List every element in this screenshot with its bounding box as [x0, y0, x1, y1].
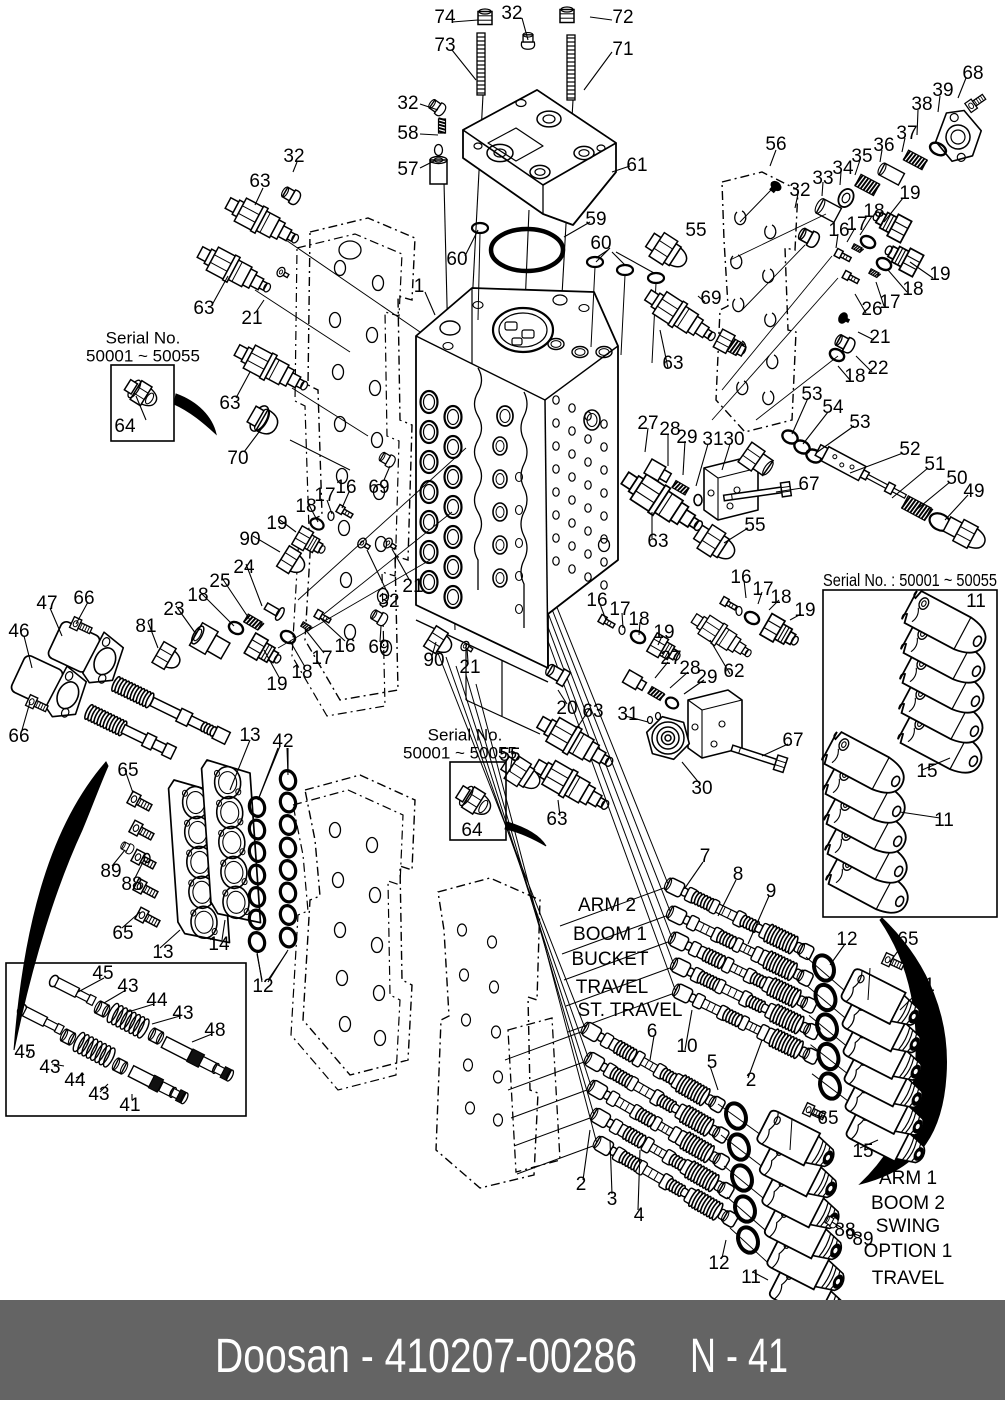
svg-text:1: 1: [414, 276, 425, 297]
svg-text:66: 66: [8, 726, 29, 747]
svg-text:32: 32: [397, 93, 418, 114]
svg-text:65: 65: [117, 760, 138, 781]
svg-text:39: 39: [932, 80, 953, 101]
svg-text:Doosan - 410207-00286: Doosan - 410207-00286: [215, 1330, 637, 1383]
svg-text:16: 16: [730, 567, 751, 588]
svg-text:43: 43: [117, 976, 138, 997]
svg-text:TRAVEL: TRAVEL: [872, 1268, 945, 1289]
svg-text:18: 18: [902, 279, 923, 300]
svg-text:72: 72: [612, 7, 633, 28]
svg-text:13: 13: [152, 942, 173, 963]
svg-text:55: 55: [685, 220, 706, 241]
svg-text:12: 12: [836, 929, 857, 950]
svg-text:8: 8: [733, 864, 744, 885]
svg-text:52: 52: [899, 439, 920, 460]
svg-text:61: 61: [626, 155, 647, 176]
svg-text:14: 14: [208, 934, 230, 955]
svg-text:13: 13: [239, 725, 260, 746]
svg-text:88: 88: [121, 874, 142, 895]
svg-text:56: 56: [765, 134, 786, 155]
svg-text:58: 58: [397, 123, 418, 144]
svg-text:7: 7: [700, 846, 711, 867]
svg-text:23: 23: [163, 599, 184, 620]
svg-text:18: 18: [844, 366, 865, 387]
svg-text:20: 20: [556, 698, 577, 719]
svg-text:17: 17: [879, 292, 900, 313]
svg-text:18: 18: [187, 585, 208, 606]
svg-text:43: 43: [172, 1003, 193, 1024]
svg-text:15: 15: [916, 761, 937, 782]
svg-text:22: 22: [867, 358, 888, 379]
svg-text:31: 31: [702, 429, 723, 450]
svg-text:21: 21: [402, 576, 423, 597]
svg-text:44: 44: [146, 990, 168, 1011]
svg-text:34: 34: [832, 158, 854, 179]
svg-text:41: 41: [119, 1095, 140, 1116]
svg-text:53: 53: [801, 384, 822, 405]
svg-text:SWING: SWING: [876, 1216, 940, 1237]
svg-text:2: 2: [576, 1174, 587, 1195]
svg-text:69: 69: [368, 637, 389, 658]
svg-text:64: 64: [114, 416, 136, 437]
svg-text:18: 18: [628, 609, 649, 630]
svg-text:24: 24: [233, 557, 255, 578]
svg-text:63: 63: [249, 171, 270, 192]
svg-text:65: 65: [817, 1108, 838, 1129]
svg-text:19: 19: [929, 264, 950, 285]
svg-text:Serial No.: Serial No.: [428, 725, 503, 744]
svg-text:45: 45: [14, 1042, 35, 1063]
svg-text:60: 60: [590, 233, 611, 254]
svg-text:90: 90: [423, 650, 444, 671]
svg-text:17: 17: [846, 214, 867, 235]
svg-text:35: 35: [851, 146, 872, 167]
svg-text:29: 29: [676, 427, 697, 448]
svg-text:48: 48: [204, 1020, 225, 1041]
svg-text:ARM 2: ARM 2: [578, 895, 636, 916]
svg-text:21: 21: [459, 657, 480, 678]
svg-text:BOOM 2: BOOM 2: [871, 1193, 945, 1214]
svg-text:32: 32: [378, 591, 399, 612]
svg-text:50001 ~ 50055: 50001 ~ 50055: [86, 346, 200, 365]
svg-text:54: 54: [822, 397, 844, 418]
svg-text:44: 44: [64, 1070, 86, 1091]
svg-text:62: 62: [723, 661, 744, 682]
svg-text:53: 53: [849, 412, 870, 433]
svg-text:50001 ~ 50055: 50001 ~ 50055: [403, 743, 517, 762]
svg-text:9: 9: [766, 881, 777, 902]
svg-text:21: 21: [869, 327, 890, 348]
svg-text:27: 27: [637, 413, 658, 434]
svg-text:19: 19: [899, 183, 920, 204]
svg-text:19: 19: [266, 513, 287, 534]
svg-text:BUCKET: BUCKET: [571, 949, 648, 970]
svg-text:ARM 1: ARM 1: [879, 1168, 937, 1189]
svg-text:30: 30: [723, 429, 744, 450]
svg-text:11: 11: [741, 1267, 761, 1288]
svg-text:66: 66: [73, 588, 94, 609]
svg-text:63: 63: [647, 531, 668, 552]
svg-text:19: 19: [266, 674, 287, 695]
svg-text:11: 11: [915, 975, 935, 996]
svg-text:81: 81: [135, 616, 156, 637]
svg-text:64: 64: [461, 820, 483, 841]
svg-text:4: 4: [634, 1205, 645, 1226]
svg-text:29: 29: [696, 667, 717, 688]
svg-text:12: 12: [708, 1253, 729, 1274]
svg-text:67: 67: [782, 730, 803, 751]
svg-text:67: 67: [798, 474, 819, 495]
svg-text:55: 55: [744, 515, 765, 536]
svg-text:5: 5: [707, 1052, 718, 1073]
svg-text:47: 47: [36, 593, 57, 614]
svg-text:42: 42: [272, 731, 293, 752]
svg-text:69: 69: [700, 288, 721, 309]
svg-text:OPTION 1: OPTION 1: [864, 1241, 953, 1262]
svg-text:37: 37: [896, 123, 917, 144]
svg-text:16: 16: [586, 590, 607, 611]
svg-text:11: 11: [934, 810, 954, 831]
svg-text:89: 89: [100, 861, 121, 882]
svg-text:57: 57: [397, 159, 418, 180]
svg-text:3: 3: [607, 1189, 618, 1210]
svg-text:45: 45: [92, 963, 113, 984]
svg-text:38: 38: [911, 94, 932, 115]
svg-text:18: 18: [770, 587, 791, 608]
svg-text:33: 33: [812, 168, 833, 189]
svg-text:11: 11: [966, 591, 986, 612]
svg-text:30: 30: [691, 778, 712, 799]
svg-text:17: 17: [314, 485, 335, 506]
svg-text:N - 41: N - 41: [690, 1330, 788, 1383]
svg-text:Serial No. : 50001 ~ 50055: Serial No. : 50001 ~ 50055: [823, 570, 997, 590]
svg-text:6: 6: [647, 1021, 658, 1042]
svg-text:16: 16: [334, 636, 355, 657]
svg-text:90: 90: [239, 529, 260, 550]
svg-text:32: 32: [283, 146, 304, 167]
svg-text:12: 12: [252, 976, 273, 997]
svg-text:TRAVEL: TRAVEL: [576, 977, 649, 998]
svg-text:21: 21: [241, 308, 262, 329]
svg-text:26: 26: [861, 299, 882, 320]
svg-text:10: 10: [676, 1036, 697, 1057]
svg-text:BOOM 1: BOOM 1: [573, 924, 647, 945]
svg-text:16: 16: [335, 477, 356, 498]
svg-text:51: 51: [924, 454, 945, 475]
svg-text:32: 32: [501, 3, 522, 24]
svg-text:68: 68: [962, 63, 983, 84]
svg-text:19: 19: [794, 600, 815, 621]
svg-text:31: 31: [617, 704, 638, 725]
svg-text:17: 17: [609, 599, 630, 620]
svg-text:18: 18: [291, 662, 312, 683]
svg-text:63: 63: [546, 809, 567, 830]
svg-text:19: 19: [653, 622, 674, 643]
svg-text:70: 70: [227, 448, 248, 469]
svg-text:65: 65: [897, 929, 918, 950]
svg-text:71: 71: [612, 39, 633, 60]
svg-text:43: 43: [88, 1084, 109, 1105]
svg-text:25: 25: [209, 571, 230, 592]
svg-text:63: 63: [582, 701, 603, 722]
svg-text:18: 18: [295, 496, 316, 517]
svg-text:ST. TRAVEL: ST. TRAVEL: [578, 1000, 683, 1021]
svg-text:59: 59: [585, 209, 606, 230]
svg-text:74: 74: [434, 7, 456, 28]
svg-text:32: 32: [789, 180, 810, 201]
svg-text:46: 46: [8, 621, 29, 642]
svg-text:73: 73: [434, 35, 455, 56]
svg-text:63: 63: [662, 353, 683, 374]
svg-text:69: 69: [368, 477, 389, 498]
svg-text:2: 2: [746, 1070, 757, 1091]
svg-text:65: 65: [112, 923, 133, 944]
svg-text:36: 36: [873, 135, 894, 156]
svg-text:15: 15: [852, 1141, 873, 1162]
svg-text:60: 60: [446, 249, 467, 270]
svg-text:63: 63: [193, 298, 214, 319]
svg-text:43: 43: [39, 1057, 60, 1078]
svg-text:49: 49: [963, 481, 984, 502]
svg-text:63: 63: [219, 393, 240, 414]
svg-text:16: 16: [828, 220, 849, 241]
svg-text:Serial No.: Serial No.: [106, 328, 181, 347]
svg-text:27: 27: [660, 648, 681, 669]
svg-text:17: 17: [311, 648, 332, 669]
